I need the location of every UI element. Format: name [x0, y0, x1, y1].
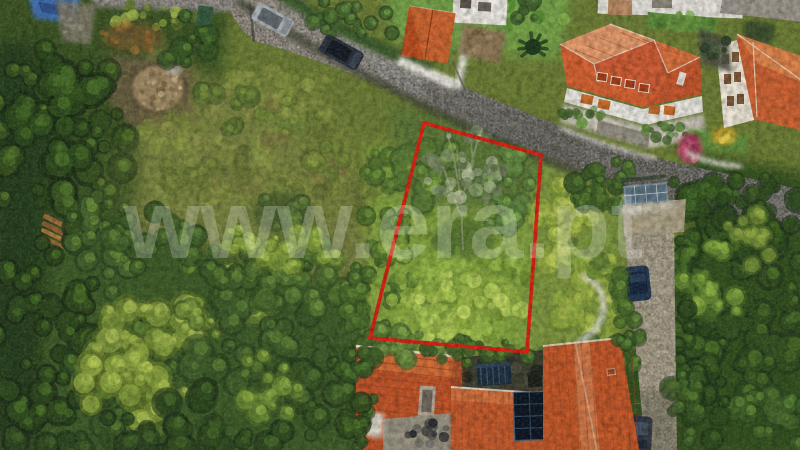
svg-text:www.era.pt: www.era.pt: [123, 169, 643, 279]
